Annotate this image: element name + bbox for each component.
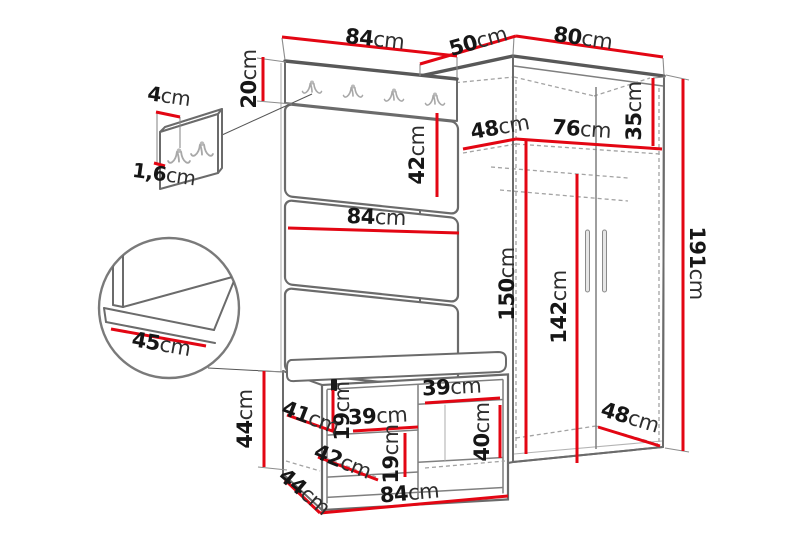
dim-top-shelf-height: 35cm	[622, 81, 646, 140]
dim-line-hook-plate-height	[156, 112, 180, 117]
dim-wardrobe-top-width: 80cm	[552, 22, 614, 54]
wardrobe-right-edge	[663, 76, 664, 447]
dim-wardrobe-interior-height: 150cm	[495, 247, 519, 320]
dim-bench-lower-gap: 19cm	[379, 424, 403, 483]
dim-bench-opening-height: 40cm	[470, 402, 494, 461]
diagram-canvas: 84cm 20cm 4cm 1,6cm 50cm 80cm 48cm 76cm …	[0, 0, 800, 533]
dim-wall-panel-width: 84cm	[346, 204, 406, 230]
dim-hook-plate-height: 4cm	[146, 81, 192, 111]
dim-top-shelf-width: 76cm	[551, 115, 612, 143]
dim-hook-panel-width: 84cm	[344, 24, 405, 54]
dim-wardrobe-top-depth: 50cm	[446, 22, 510, 61]
dim-bench-height: 44cm	[233, 389, 257, 448]
right-door-handle	[603, 230, 607, 292]
wall-panels	[285, 104, 458, 390]
dim-bench-opening-width: 39cm	[421, 373, 481, 400]
dim-door-height: 142cm	[547, 270, 571, 343]
dim-wardrobe-height: 191cm	[685, 226, 709, 299]
dim-hook-panel-height: 20cm	[237, 49, 261, 108]
magnified-corner-detail	[99, 236, 284, 378]
furniture-dimension-diagram: 84cm 20cm 4cm 1,6cm 50cm 80cm 48cm 76cm …	[0, 0, 800, 533]
left-door-handle	[586, 230, 590, 292]
dim-wall-panel-height: 42cm	[405, 125, 429, 184]
upholstered-panel-top	[285, 104, 458, 214]
